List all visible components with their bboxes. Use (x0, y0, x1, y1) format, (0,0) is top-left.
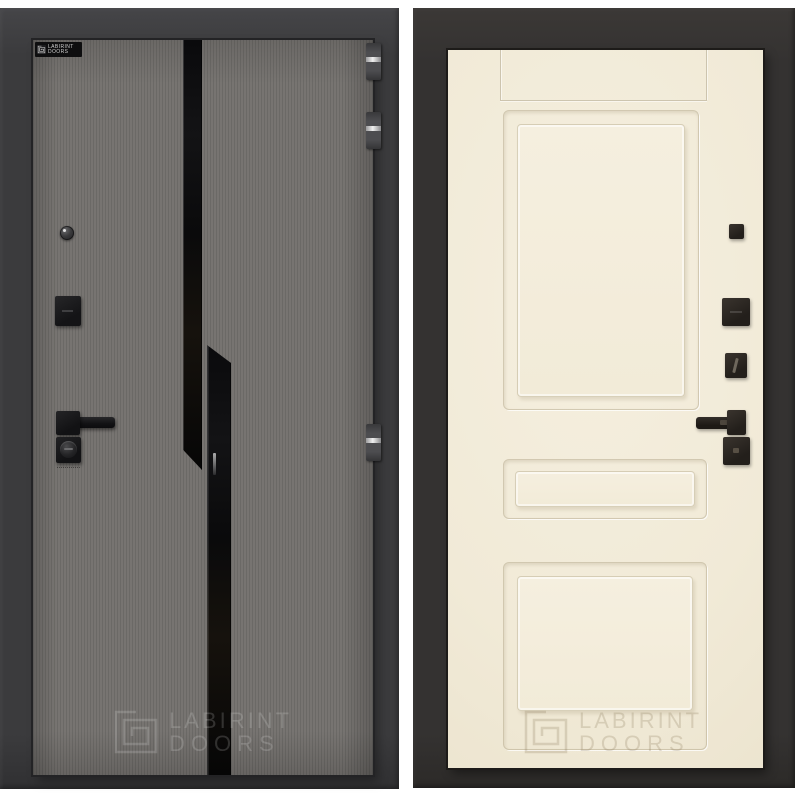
top-panel (503, 110, 699, 410)
screw-dots (57, 467, 80, 468)
door-handle (727, 410, 746, 435)
labyrinth-logo-icon (37, 45, 46, 54)
cylinder-lock (723, 437, 750, 465)
bottom-panel (503, 562, 707, 750)
keyhole (60, 441, 77, 458)
hinge-pin (366, 126, 381, 131)
door-handle (56, 411, 80, 435)
rail-joint (500, 100, 707, 101)
lock-cover-plate (722, 298, 750, 326)
hinge-bottom (366, 424, 381, 461)
panel-field (515, 471, 695, 507)
right-door-photo: LABIRINT DOORS (413, 8, 795, 788)
peephole (60, 226, 74, 240)
brand-badge: LABIRINT DOORS (35, 42, 82, 57)
brand-watermark: LABIRINT DOORS (112, 708, 292, 756)
cylinder-lock (56, 437, 81, 463)
stile-joint-left (500, 50, 501, 100)
labyrinth-watermark-icon (112, 708, 160, 756)
panel-field (517, 124, 685, 397)
hinge-pin (366, 438, 381, 443)
hinge-top (366, 43, 381, 80)
panel-field (517, 576, 693, 711)
left-door-leaf: LABIRINT DOORS LABIRINT (33, 40, 373, 775)
middle-panel (503, 459, 707, 519)
brand-badge-text: LABIRINT DOORS (48, 45, 74, 54)
glass-strip-upper (183, 40, 202, 470)
glass-reflection (213, 453, 216, 475)
peephole-cover (729, 224, 744, 239)
stile-joint-right (706, 50, 707, 100)
hinge-pin (366, 57, 381, 62)
right-door-leaf: LABIRINT DOORS (448, 50, 763, 768)
night-latch-thumbturn (725, 353, 747, 378)
brand-badge-line2: DOORS (48, 50, 74, 55)
glass-strip-lower (207, 345, 231, 775)
lock-cover-plate (55, 296, 81, 326)
left-door-photo: LABIRINT DOORS LABIRINT (0, 8, 399, 789)
hinge-middle (366, 112, 381, 149)
